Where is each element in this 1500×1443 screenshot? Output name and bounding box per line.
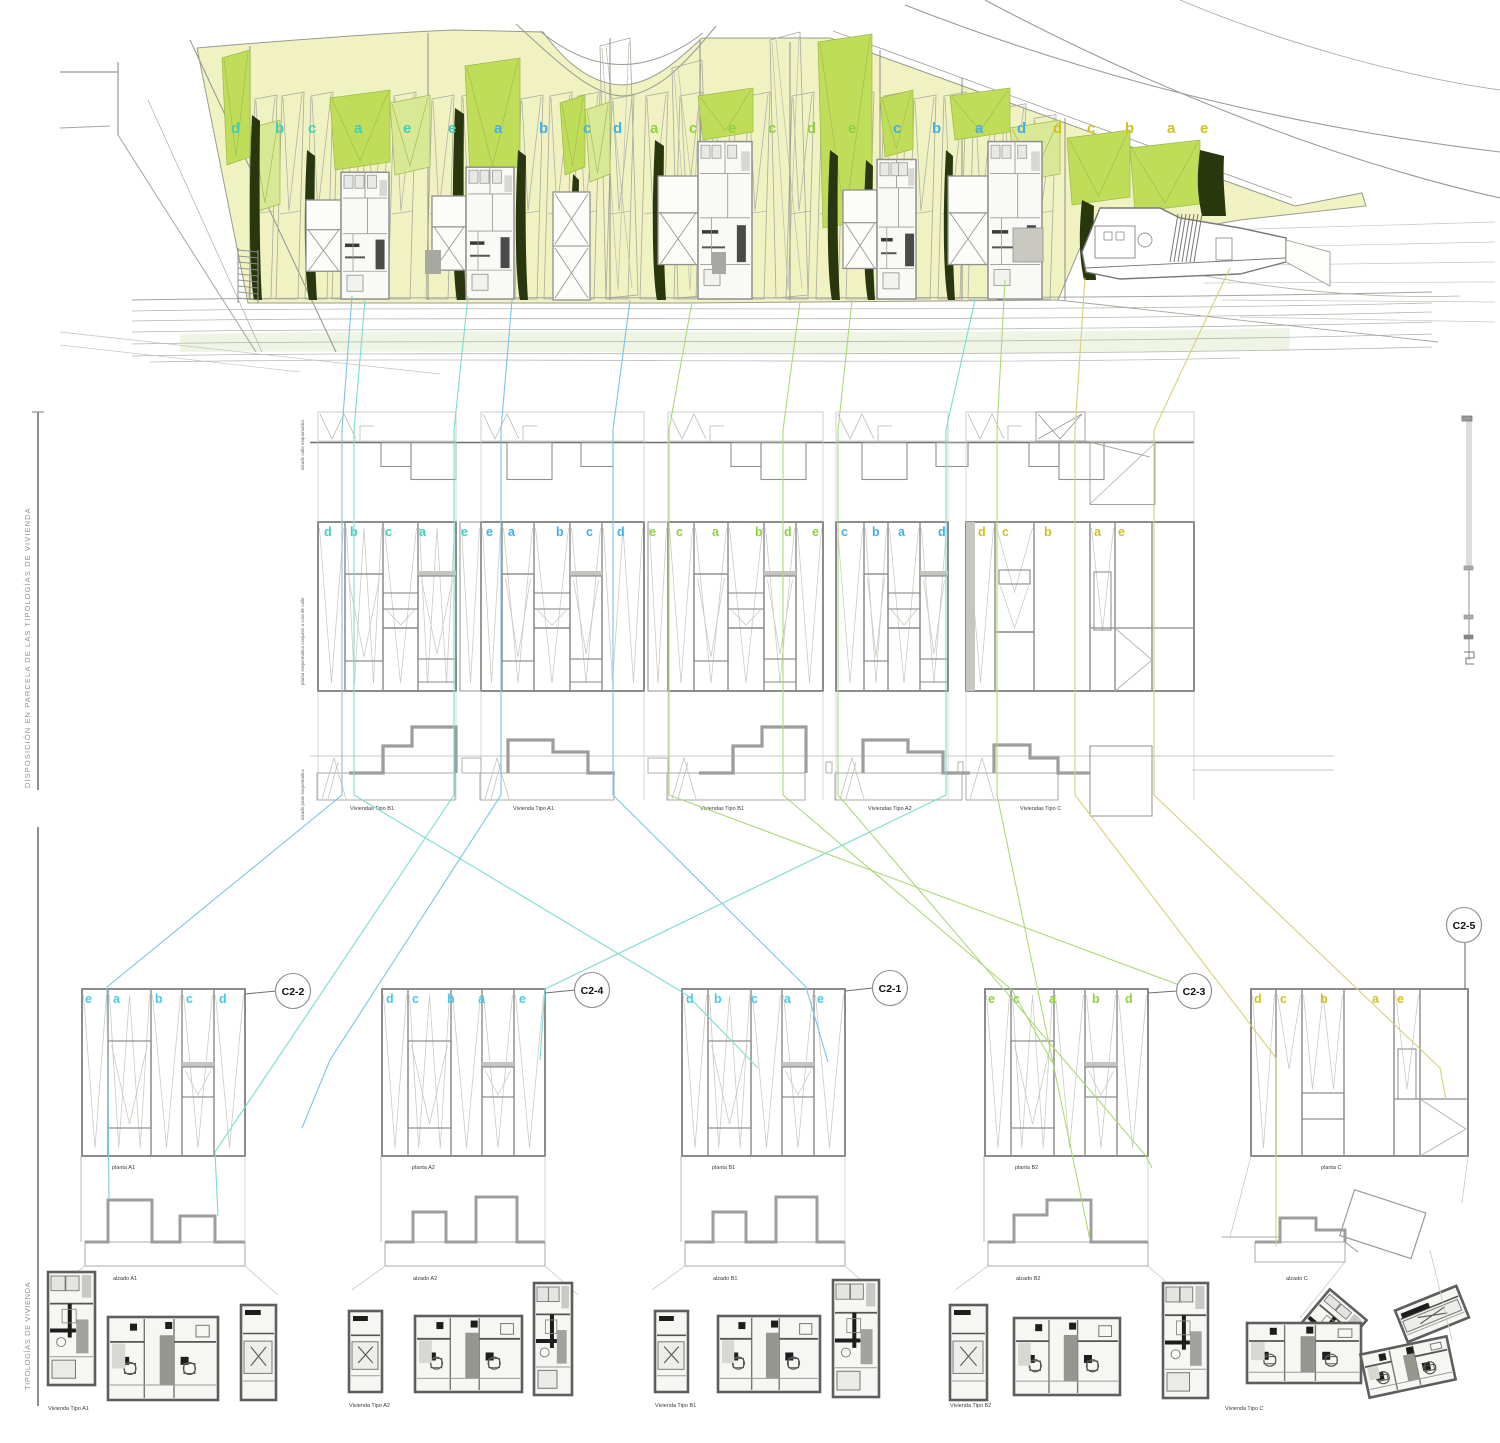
svg-text:c: c	[841, 525, 848, 539]
svg-text:b: b	[155, 992, 163, 1006]
svg-text:d: d	[219, 992, 227, 1006]
svg-text:d: d	[784, 525, 792, 539]
svg-text:d: d	[1053, 120, 1062, 137]
svg-text:alzado B1: alzado B1	[713, 1276, 737, 1282]
svg-text:d: d	[1017, 120, 1026, 137]
svg-text:C2-5: C2-5	[1453, 920, 1476, 932]
svg-text:b: b	[1125, 120, 1134, 137]
svg-text:d: d	[386, 992, 394, 1006]
svg-text:d: d	[807, 120, 816, 137]
svg-text:alzado calle esquemático: alzado calle esquemático	[300, 419, 305, 470]
svg-text:e: e	[1200, 120, 1208, 137]
svg-text:e: e	[486, 525, 493, 539]
svg-text:planta C: planta C	[1321, 1165, 1342, 1171]
svg-text:alzado A1: alzado A1	[113, 1276, 137, 1282]
svg-text:d: d	[1125, 992, 1133, 1006]
svg-text:a: a	[508, 525, 516, 539]
svg-text:e: e	[461, 525, 468, 539]
svg-text:b: b	[932, 120, 941, 137]
svg-text:DISPOSICIÓN EN PARCELA DE LAS: DISPOSICIÓN EN PARCELA DE LAS TIPOLOGÍAS…	[23, 507, 32, 788]
svg-text:a: a	[1049, 992, 1057, 1006]
svg-text:b: b	[1320, 992, 1328, 1006]
svg-text:b: b	[556, 525, 564, 539]
svg-text:b: b	[1092, 992, 1100, 1006]
svg-text:a: a	[1167, 120, 1176, 137]
svg-text:planta B2: planta B2	[1015, 1165, 1038, 1171]
svg-text:planta A2: planta A2	[412, 1165, 435, 1171]
svg-text:C2-1: C2-1	[879, 983, 902, 995]
svg-text:alzado B2: alzado B2	[1016, 1276, 1040, 1282]
svg-text:C2-2: C2-2	[282, 986, 305, 998]
svg-text:e: e	[728, 120, 736, 137]
svg-text:c: c	[583, 120, 591, 137]
svg-text:c: c	[1002, 525, 1009, 539]
svg-text:c: c	[1280, 992, 1287, 1006]
svg-text:a: a	[494, 120, 503, 137]
svg-text:Viviendas Tipo C: Viviendas Tipo C	[1020, 806, 1061, 812]
svg-text:e: e	[817, 992, 824, 1006]
svg-text:e: e	[1397, 992, 1404, 1006]
svg-text:planta A1: planta A1	[112, 1165, 135, 1171]
svg-text:a: a	[712, 525, 720, 539]
svg-text:e: e	[649, 525, 656, 539]
svg-text:Viviendas Tipo B1: Viviendas Tipo B1	[350, 806, 394, 812]
svg-text:a: a	[975, 120, 984, 137]
svg-text:d: d	[231, 120, 240, 137]
svg-text:alzado A2: alzado A2	[413, 1276, 437, 1282]
svg-text:b: b	[1044, 525, 1052, 539]
svg-text:e: e	[403, 120, 411, 137]
svg-text:a: a	[478, 992, 486, 1006]
svg-text:d: d	[938, 525, 946, 539]
svg-text:Viviendas Tipo A2: Viviendas Tipo A2	[868, 806, 912, 812]
svg-text:Vivienda Tipo A1: Vivienda Tipo A1	[48, 1406, 89, 1412]
svg-text:c: c	[689, 120, 697, 137]
svg-text:Vivienda Tipo A1: Vivienda Tipo A1	[513, 806, 554, 812]
svg-text:e: e	[988, 992, 995, 1006]
svg-text:alzado C: alzado C	[1286, 1276, 1308, 1282]
svg-text:b: b	[275, 120, 284, 137]
svg-text:d: d	[324, 525, 332, 539]
svg-text:c: c	[768, 120, 776, 137]
svg-text:d: d	[978, 525, 986, 539]
svg-text:Vivienda Tipo C: Vivienda Tipo C	[1225, 1406, 1263, 1412]
svg-text:d: d	[613, 120, 622, 137]
svg-text:planta esquemática conjunto a: planta esquemática conjunto a cota de ca…	[300, 597, 305, 685]
svg-text:e: e	[1118, 525, 1125, 539]
svg-text:Vivienda Tipo B2: Vivienda Tipo B2	[950, 1403, 991, 1409]
svg-text:a: a	[419, 525, 427, 539]
svg-text:c: c	[186, 992, 193, 1006]
svg-text:Vivienda Tipo A2: Vivienda Tipo A2	[349, 1403, 390, 1409]
svg-text:c: c	[751, 992, 758, 1006]
svg-text:e: e	[812, 525, 819, 539]
svg-text:c: c	[586, 525, 593, 539]
svg-text:a: a	[784, 992, 792, 1006]
svg-text:b: b	[755, 525, 763, 539]
svg-text:e: e	[448, 120, 456, 137]
svg-text:b: b	[872, 525, 880, 539]
svg-text:e: e	[519, 992, 526, 1006]
svg-text:b: b	[714, 992, 722, 1006]
svg-text:e: e	[848, 120, 856, 137]
svg-text:a: a	[1094, 525, 1102, 539]
svg-text:c: c	[412, 992, 419, 1006]
svg-text:d: d	[686, 992, 694, 1006]
svg-text:a: a	[113, 992, 121, 1006]
svg-text:c: c	[385, 525, 392, 539]
svg-text:e: e	[85, 992, 92, 1006]
svg-text:a: a	[650, 120, 659, 137]
svg-text:Vivienda Tipo B1: Vivienda Tipo B1	[655, 1403, 696, 1409]
svg-text:a: a	[354, 120, 363, 137]
svg-text:C2-3: C2-3	[1183, 986, 1206, 998]
svg-text:c: c	[1087, 120, 1095, 137]
svg-text:a: a	[898, 525, 906, 539]
svg-text:C2-4: C2-4	[581, 985, 604, 997]
svg-text:alzado patio esquemático: alzado patio esquemático	[300, 768, 305, 820]
svg-text:planta B1: planta B1	[712, 1165, 735, 1171]
svg-text:TIPOLOGÍAS DE VIVIENDA: TIPOLOGÍAS DE VIVIENDA	[23, 1282, 32, 1390]
svg-text:b: b	[539, 120, 548, 137]
svg-text:d: d	[617, 525, 625, 539]
svg-text:c: c	[893, 120, 901, 137]
svg-text:d: d	[1254, 992, 1262, 1006]
svg-text:b: b	[447, 992, 455, 1006]
svg-text:c: c	[308, 120, 316, 137]
svg-text:c: c	[676, 525, 683, 539]
